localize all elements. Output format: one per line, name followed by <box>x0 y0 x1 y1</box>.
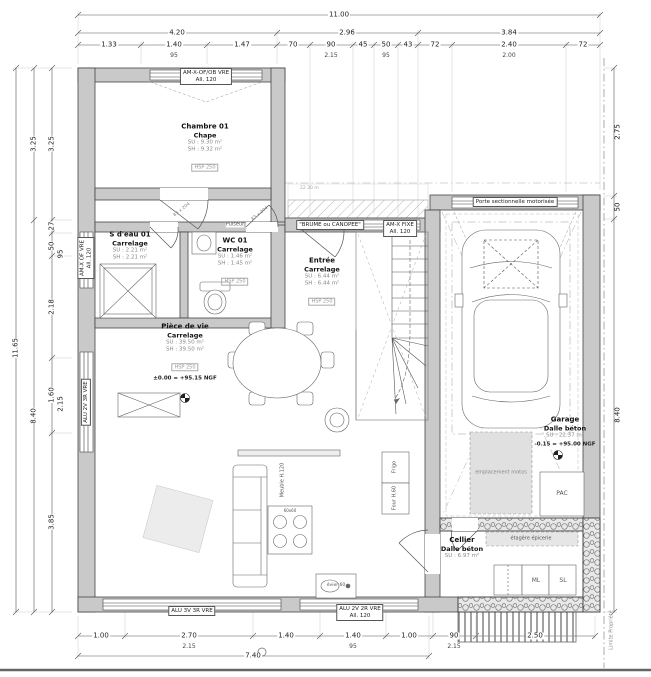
pulseur-note: Pulseur <box>226 223 244 228</box>
dim-label: 3.25 <box>31 136 38 152</box>
door-entree <box>302 230 344 257</box>
room-name: Chambre 01 <box>181 123 229 132</box>
dim-label: 8.40 <box>31 408 38 424</box>
room-label-entree: Entrée Carrelage SU : 6.44 m² SH : 6.44 … <box>304 257 340 308</box>
room-name: Pièce de vie <box>153 322 216 331</box>
cooktop-label: 60x60 <box>284 509 297 513</box>
dim-label: 11.00 <box>328 12 350 19</box>
room-name: Garage <box>534 416 595 425</box>
exterior-step-hatch <box>458 612 576 642</box>
dining-table-icon <box>228 322 334 405</box>
room-name: Cellier <box>441 536 483 545</box>
room-su: SU : 2.21 m² <box>109 248 150 255</box>
shower-icon <box>100 264 156 318</box>
south-window-big-label: ALU 3V 3R VRE <box>168 606 215 616</box>
level-note: -0.15 = +95.00 NGF <box>534 441 595 448</box>
dim-label: 3.85 <box>49 514 56 530</box>
level-marker-garage <box>554 451 563 460</box>
dim-label: 3.84 <box>500 30 518 37</box>
dim-label: 1.40 <box>344 633 362 640</box>
dim-label: 27 <box>49 222 56 231</box>
window-sill: All. 120 <box>86 240 93 276</box>
room-su: SU : 9.30 m² <box>181 140 229 147</box>
room-sh: SH : 2.21 m² <box>109 254 150 261</box>
west-window-living-label: ALU 2V 3R VRE <box>81 378 91 425</box>
washbasin-icon <box>192 232 216 254</box>
room-sh: SH : 1.45 m² <box>217 260 253 267</box>
room-floor: Carrelage <box>217 245 253 253</box>
dim-sub-label: 95 <box>58 250 65 259</box>
window-ref: "BRUME ou CANOPEE" <box>299 222 361 229</box>
dim-label: 1.00 <box>92 633 110 640</box>
dim-sub-label: 2.15 <box>58 396 65 412</box>
property-line-label: Limite Propriété <box>610 610 615 650</box>
window-ref: ALU 3V 3R VRE <box>171 608 212 615</box>
stair-walk-line <box>394 240 410 400</box>
window-ref: ALU 2V 2R VRE <box>339 606 380 613</box>
entree-window-label-2: AM-X FIXE All. 120 <box>383 220 417 237</box>
dim-label: 90 <box>326 42 337 49</box>
window-ref: AM-X OF VRE <box>79 240 86 276</box>
room-su: SU : 39.50 m² <box>153 339 216 346</box>
floorplan-drawing <box>0 0 651 677</box>
dim-label: 1.33 <box>100 42 118 49</box>
south-window-small-label: ALU 2V 2R VRE All. 120 <box>336 604 383 621</box>
window-sill: All. 120 <box>339 613 380 620</box>
sofa-icon <box>233 465 267 587</box>
dim-label: 2.96 <box>338 30 356 37</box>
dim-label: 1.60 <box>49 387 56 403</box>
dim-label: 2.75 <box>615 124 622 140</box>
dim-label: 50 <box>381 42 392 49</box>
floor-plan-canvas: 11.00 4.20 2.96 3.84 1.33 1.40 1.47 70 9… <box>0 0 651 677</box>
door-cellier-living <box>399 530 428 572</box>
dim-label: 1.40 <box>277 633 295 640</box>
room-label-sdeau: S d'eau 01 Carrelage SU : 2.21 m² SH : 2… <box>109 231 150 262</box>
dim-label: 45 <box>358 42 369 49</box>
stairs <box>356 232 428 420</box>
room-sh: SH : 9.32 m² <box>181 146 229 153</box>
dim-label: 11.65 <box>13 338 20 358</box>
cooktop-icon <box>268 506 312 554</box>
dim-sub-label: 2.15 <box>181 644 196 650</box>
room-hsp: HSP 250 <box>171 363 198 371</box>
level-note: ±0.00 = +95.15 NGF <box>153 375 216 382</box>
dim-sub-label: 2.15 <box>323 53 338 59</box>
dim-label: 4.20 <box>168 30 186 37</box>
dim-sub-label: 95 <box>169 53 179 59</box>
dim-sub-label: 95 <box>348 644 358 650</box>
dim-label: 7.40 <box>244 653 262 660</box>
porch-hatch <box>288 200 428 218</box>
sideboard-icon <box>118 393 180 417</box>
room-sh: SH : 6.44 m² <box>304 280 340 287</box>
porch-note: 22.30 m <box>300 186 319 191</box>
room-floor: Carrelage <box>109 239 150 247</box>
dryer-label: SL <box>559 578 566 584</box>
dim-label: 43 <box>403 42 414 49</box>
room-label-wc: WC 01 Carrelage SU : 1.46 m² SH : 1.45 m… <box>217 237 253 288</box>
dim-sub-label: 2.15 <box>446 644 461 650</box>
dim-label: 2.70 <box>180 633 198 640</box>
pac-label: PAC <box>556 491 567 497</box>
room-floor: Carrelage <box>153 331 216 339</box>
room-sh: SH : 39.50 m² <box>153 346 216 353</box>
dim-label: 1.40 <box>165 42 183 49</box>
dim-label: 90 <box>449 633 460 640</box>
dim-label: 2.18 <box>49 299 56 315</box>
west-window-sdeau-label: AM-X OF VRE All. 120 <box>77 237 94 279</box>
window-ref: ALU 2V 3R VRE <box>82 381 89 422</box>
dim-label: 2.50 <box>526 633 544 640</box>
room-hsp: HSP 250 <box>308 297 335 305</box>
room-su: SU : 22.37 m² <box>534 433 595 440</box>
dim-label: 8.40 <box>615 407 622 423</box>
dim-label: 72 <box>430 42 441 49</box>
dim-sub-label: 95 <box>381 53 391 59</box>
door-ref: Porte sectionnelle motorisée <box>476 199 555 206</box>
level-marker-living <box>181 394 190 403</box>
room-label-cellier: Cellier Dalle béton SU : 6.97 m² <box>441 536 483 560</box>
rug-icon <box>143 485 213 552</box>
room-hsp: HSP 250 <box>191 163 218 171</box>
room-su: SU : 1.46 m² <box>217 254 253 261</box>
dim-label: 1.00 <box>400 633 418 640</box>
kitchen-unit-label: Meuble H.120 <box>281 463 286 498</box>
oven-label: Four H.60 <box>393 486 398 510</box>
room-hsp: HSP 250 <box>221 277 248 285</box>
window-sill: All. 120 <box>183 77 229 84</box>
room-name: WC 01 <box>217 237 253 246</box>
entree-window-label-1: "BRUME ou CANOPEE" <box>296 220 364 230</box>
room-floor: Dalle béton <box>534 424 595 432</box>
room-name: Entrée <box>304 257 340 266</box>
garage-door-label: Porte sectionnelle motorisée <box>473 197 558 207</box>
dim-label: 50 <box>49 242 56 251</box>
dim-label: 70 <box>288 42 299 49</box>
fridge-label: Frigo <box>393 461 398 473</box>
room-floor: Chape <box>181 131 229 139</box>
car-icon <box>452 222 570 434</box>
dim-label: 3.25 <box>49 136 56 152</box>
room-floor: Carrelage <box>304 265 340 273</box>
kitchen-counter <box>238 450 340 456</box>
room-label-piece-de-vie: Pièce de vie Carrelage SU : 39.50 m² SH … <box>153 322 216 382</box>
window-ref: AM-X FIXE <box>386 222 414 229</box>
room-su: SU : 6.97 m² <box>441 553 483 560</box>
sink-label: évier 60 <box>327 584 345 589</box>
room-label-garage: Garage Dalle béton SU : 22.37 m² -0.15 =… <box>534 416 595 449</box>
furniture-layer <box>100 232 409 598</box>
dim-label: 2.40 <box>500 42 518 49</box>
chambre-window-label: AM-X-OF/OB VRE All. 120 <box>180 68 232 85</box>
room-su: SU : 6.44 m² <box>304 274 340 281</box>
motos-note: emplacement motos <box>475 471 527 476</box>
window-ref: AM-X-OF/OB VRE <box>183 70 229 77</box>
shelf-label: étagère épicerie <box>511 537 552 542</box>
washer-label: ML <box>532 578 541 584</box>
window-sill: All. 120 <box>386 229 414 236</box>
room-floor: Dalle béton <box>441 545 483 553</box>
dim-label: 1.47 <box>233 42 251 49</box>
dim-label: 50 <box>615 203 622 212</box>
dim-sub-label: 2.00 <box>501 53 516 59</box>
room-label-chambre: Chambre 01 Chape SU : 9.30 m² SH : 9.32 … <box>181 123 229 174</box>
dim-label: 72 <box>578 42 589 49</box>
room-name: S d'eau 01 <box>109 231 150 240</box>
armchair-icon <box>325 408 349 432</box>
